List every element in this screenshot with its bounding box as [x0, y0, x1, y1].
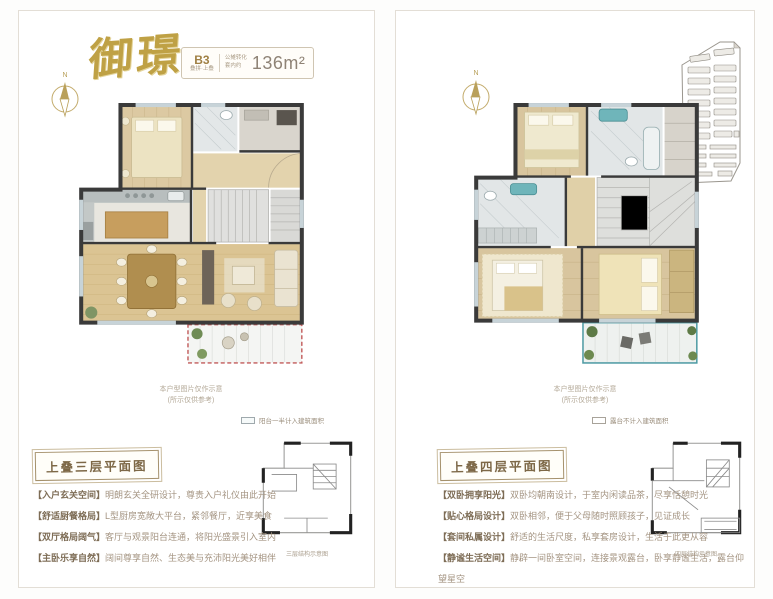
feature-item: 【套间私属设计】舒适的生活尺度，私享套房设计，生活于此更从容 [438, 527, 748, 548]
legend-swatch [592, 417, 606, 424]
feature-list-3f: 【入户玄关空间】明朗玄关全研设计，尊贵入户礼仪由此开始 【舒适厨餐格局】L型厨房… [33, 485, 365, 569]
compass-n-label: N [62, 72, 67, 79]
feature-item: 【入户玄关空间】明朗玄关全研设计，尊贵入户礼仪由此开始 [33, 485, 365, 506]
legend-text: 阳台一半计入建筑面积 [259, 415, 324, 425]
balcony-legend: 阳台一半计入建筑面积 [241, 415, 324, 425]
brand-title: 御璟 [87, 17, 187, 88]
spec-divider [219, 54, 220, 72]
panel-floor-3: 御璟 N B3 叠拼·上叠 公摊转化 套内约 136m² [18, 10, 375, 588]
spec-note-2: 套内约 [225, 63, 247, 71]
unit-subtitle: 叠拼·上叠 [190, 67, 214, 73]
feature-list-4f: 【双卧拥享阳光】双卧均朝南设计，于室内闲读品茶，尽享恬憩时光 【贴心格局设计】双… [438, 485, 748, 590]
plan-disclaimer: 本户型图片仅作示意 (所示仅供参考) [76, 385, 306, 406]
floor-plan-3f [75, 99, 307, 369]
poster-stage: 御璟 N B3 叠拼·上叠 公摊转化 套内约 136m² [0, 0, 773, 599]
unit-code: B3 [190, 54, 214, 66]
compass-n-label: N [473, 70, 478, 77]
unit-area: 136m² [252, 53, 306, 74]
unit-spec-box: B3 叠拼·上叠 公摊转化 套内约 136m² [181, 47, 314, 79]
feature-item: 【双厅格局阔气】客厅与观景阳台连通，将阳光盛景引入室内 [33, 527, 365, 548]
spec-note-1: 公摊转化 [225, 55, 247, 63]
legend-swatch [241, 417, 255, 424]
feature-item: 【静谧生活空间】静辟一间卧室空间，连接景观露台，卧享静谧生活，露台仰望星空 [438, 548, 748, 590]
panel-floor-4: N [395, 10, 755, 588]
feature-item: 【舒适厨餐格局】L型厨房宽敞大平台，紧邻餐厅，近享美食 [33, 506, 365, 527]
plan-disclaimer: 本户型图片仅作示意 (所示仅供参考) [470, 385, 700, 406]
feature-item: 【贴心格局设计】双卧相邻，便于父母随时照顾孩子，见证成长 [438, 506, 748, 527]
feature-item: 【双卧拥享阳光】双卧均朝南设计，于室内闲读品茶，尽享恬憩时光 [438, 485, 748, 506]
floor-4-label: 上叠四层平面图 [440, 450, 564, 481]
floor-3-label: 上叠三层平面图 [35, 450, 159, 481]
floor-plan-4f [470, 99, 702, 369]
terrace-legend: 露台不计入建筑面积 [592, 415, 669, 425]
feature-item: 【主卧乐享自然】阔间尊享自然、生态美与充沛阳光美好相伴 [33, 548, 365, 569]
legend-text: 露台不计入建筑面积 [610, 415, 669, 425]
